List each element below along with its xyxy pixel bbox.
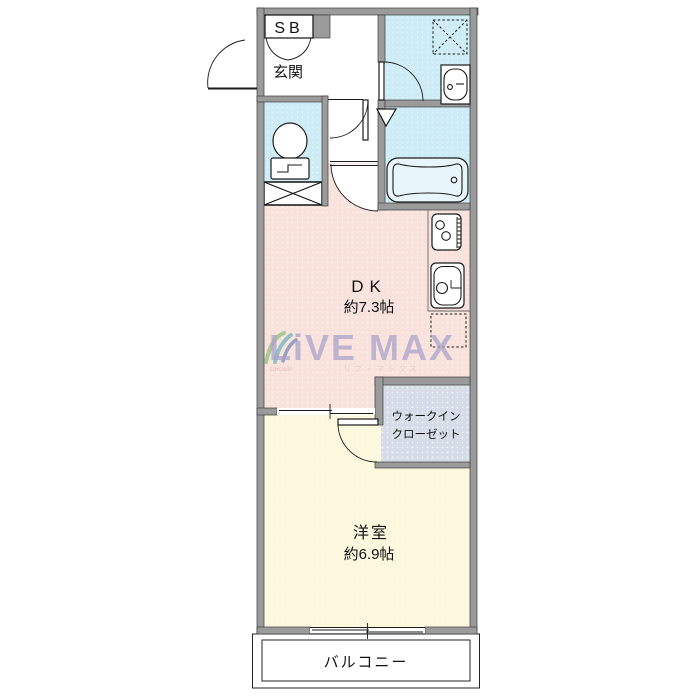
- wall-bottom-right: [425, 627, 477, 634]
- entrance-label: 玄関: [273, 64, 303, 81]
- wall-closet-top: [375, 377, 470, 385]
- wall-hall-washroom-upper: [378, 15, 385, 62]
- hatched-storage-box: [264, 182, 322, 205]
- watermark-group-text: GROUP: [270, 367, 292, 373]
- wall-toilet-right: [322, 96, 328, 206]
- bathtub-icon: [387, 158, 468, 202]
- washbasin-icon: [441, 65, 470, 104]
- dk-label: DK: [351, 277, 387, 296]
- wall-right: [470, 8, 477, 634]
- wall-bottom-left: [257, 627, 310, 634]
- wall-dk-western-stub: [257, 408, 277, 415]
- floorplan-canvas: LiVE MAX GROUP リブ・マックス SB 玄関 DK 約7.3帖 ウォ…: [0, 0, 700, 700]
- western-room-size-label: 約6.9帖: [344, 546, 395, 563]
- wic-label-line1: ウォークイン: [392, 410, 461, 423]
- western-room-label: 洋室: [353, 524, 389, 542]
- toilet-icon: [271, 123, 309, 179]
- wall-sb-stub: [313, 15, 330, 38]
- wall-entrance-toilet: [257, 96, 328, 102]
- sb-label: SB: [274, 20, 303, 37]
- dk-size-label: 約7.3帖: [344, 299, 395, 316]
- room-hallway: [328, 15, 378, 163]
- wall-top: [257, 8, 478, 15]
- kitchen-sink-icon: [431, 263, 464, 308]
- wall-bathroom-bottom: [378, 203, 470, 210]
- watermark-sub-text: リブ・マックス: [344, 364, 421, 373]
- watermark-brand-text: LiVE MAX: [269, 327, 455, 368]
- stove-icon: [432, 214, 461, 250]
- balcony-label: バルコニー: [324, 654, 409, 671]
- wall-closet-bottom: [375, 462, 470, 468]
- wall-closet-left: [375, 377, 383, 425]
- watermark: LiVE MAX GROUP リブ・マックス: [266, 327, 455, 373]
- wic-label-line2: クローゼット: [392, 428, 461, 441]
